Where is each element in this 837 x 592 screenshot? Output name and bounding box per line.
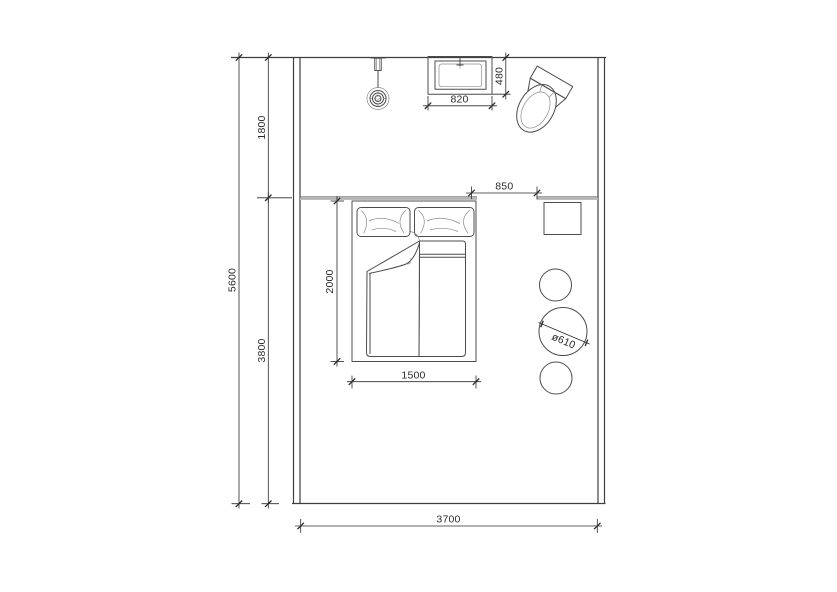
toilet-side-right [555, 96, 566, 110]
dim-label-basin-width: 820 [450, 94, 468, 106]
dim-basin-depth: 480 [493, 53, 511, 100]
dim-label-opening: 850 [495, 181, 513, 193]
nightstand [544, 203, 581, 235]
pendant-light [367, 58, 389, 110]
dim-label-bedroom-zone: 3800 [256, 338, 268, 362]
dim-bedroom-zone-depth: 3800 [256, 192, 279, 509]
dim-label-basin-depth: 480 [493, 67, 505, 85]
wash-basin [428, 57, 492, 95]
dim-label-room-width: 3700 [436, 513, 460, 525]
double-bed [352, 201, 476, 362]
pillow-left [357, 208, 410, 237]
dim-bed-length: 2000 [324, 196, 344, 367]
floor-plan-canvas: 5600 1800 3800 820 480 85 [0, 0, 837, 592]
toilet [506, 66, 573, 141]
toilet-hinge-left [538, 85, 543, 92]
duvet-right-panel [419, 241, 466, 357]
round-stools [539, 269, 587, 394]
duvet-left-panel [367, 241, 420, 357]
duvet [367, 232, 466, 357]
stool-top [540, 269, 572, 301]
toilet-bowl-outer [509, 77, 565, 139]
dim-basin-width: 820 [423, 94, 497, 111]
dim-label-entry-zone: 1800 [256, 115, 268, 139]
stool-middle [539, 308, 587, 356]
dim-room-width: 3700 [295, 513, 602, 533]
pillows [357, 208, 474, 237]
pillow-right [415, 208, 475, 237]
dim-label-stool-diameter: ø610 [550, 331, 577, 352]
light-stem-body [375, 58, 381, 71]
dim-label-bed-width: 1500 [401, 369, 425, 381]
dim-label-total-depth: 5600 [227, 268, 239, 292]
dim-opening-width: 850 [466, 181, 542, 200]
toilet-hinge-right [549, 91, 554, 98]
partition-wall [300, 197, 598, 199]
dim-total-depth: 5600 [227, 53, 251, 509]
dim-label-bed-length: 2000 [324, 269, 336, 293]
toilet-bowl-inner [515, 87, 556, 133]
dim-bed-width: 1500 [347, 369, 481, 388]
stool-bottom [540, 362, 572, 394]
dim-entry-zone-depth: 1800 [256, 53, 292, 204]
floor-plan-svg: 5600 1800 3800 820 480 85 [0, 0, 837, 592]
